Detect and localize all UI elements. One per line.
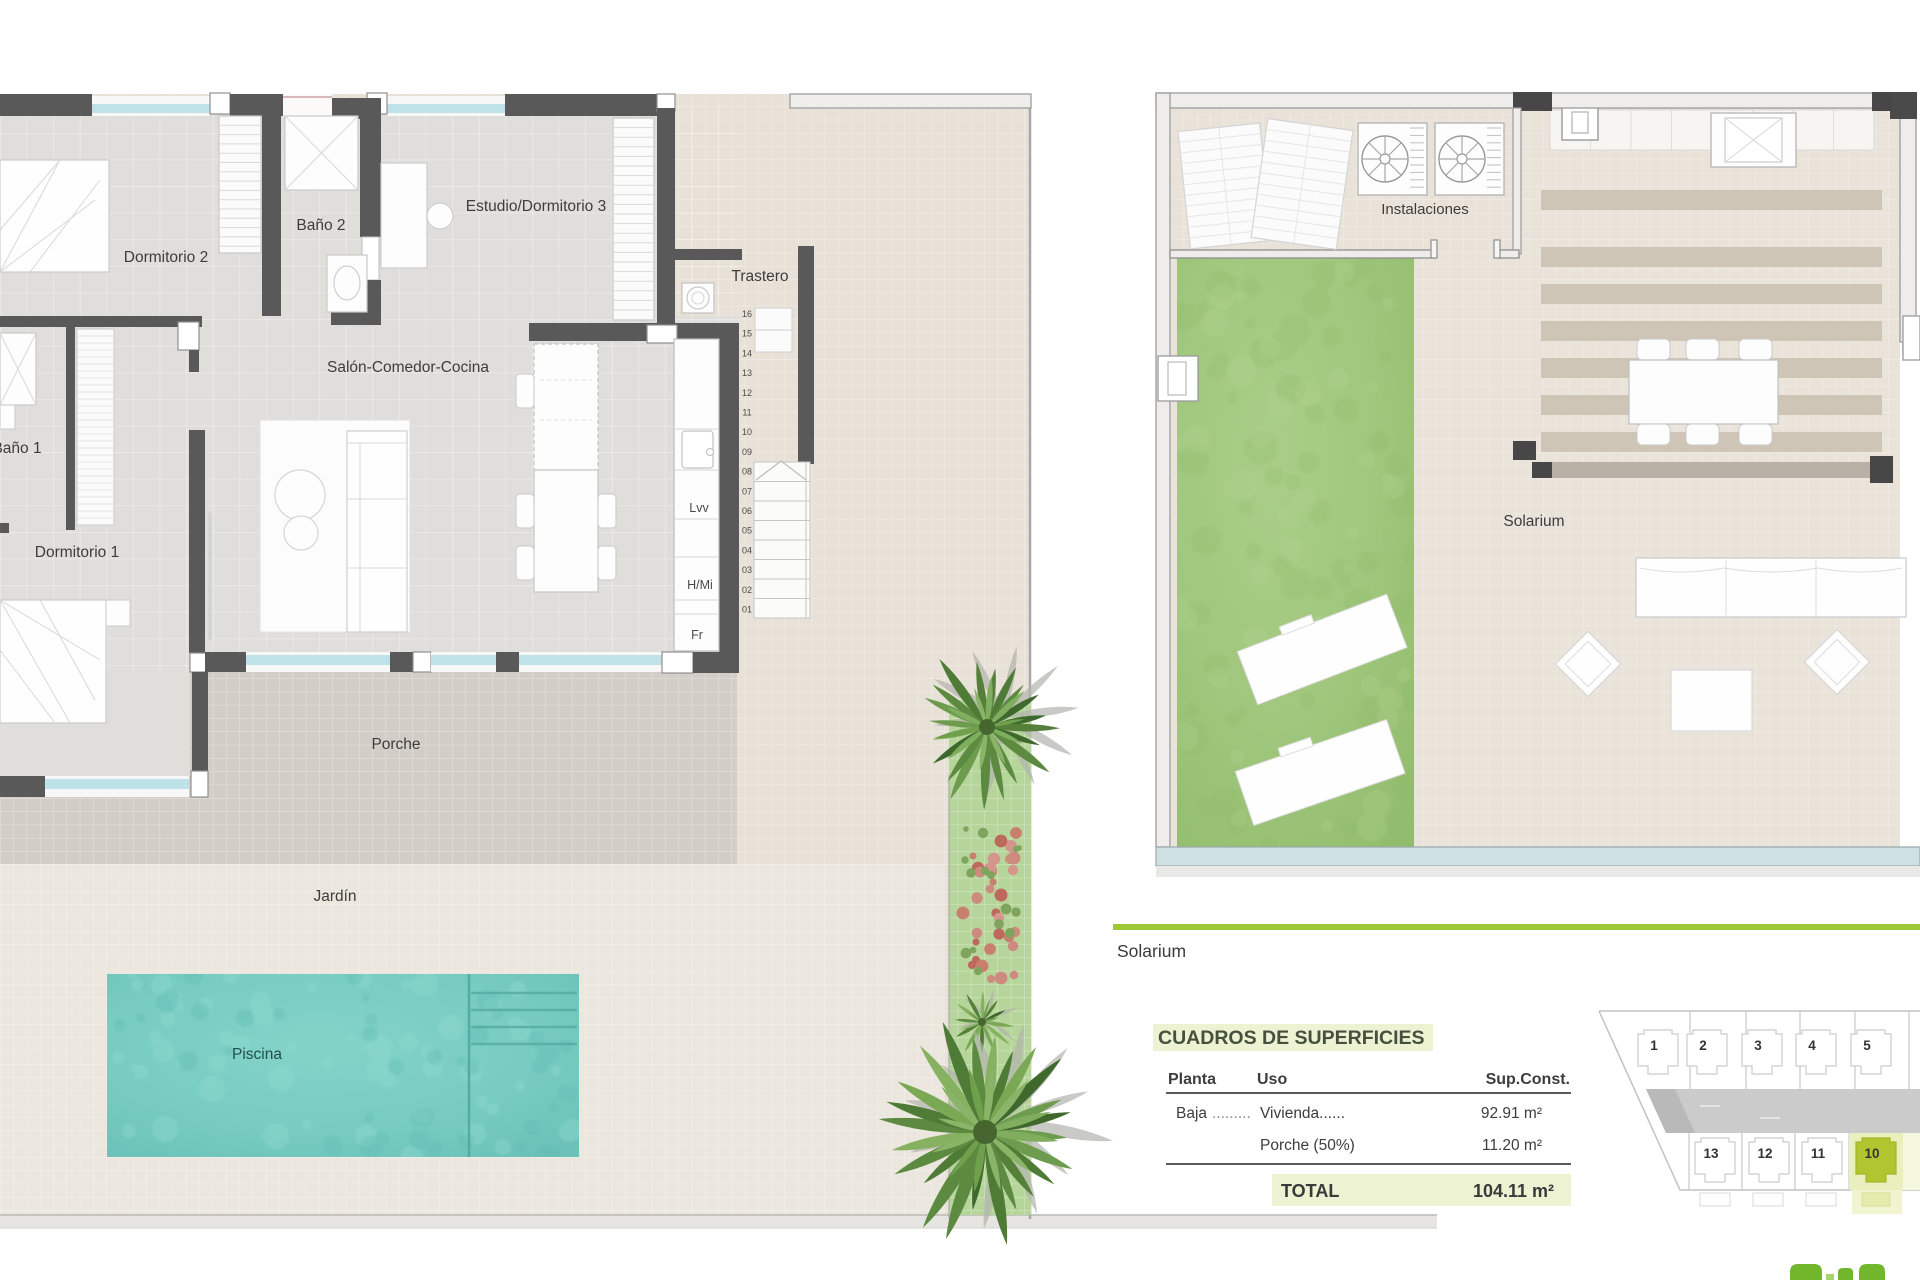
svg-text:Dormitorio 2: Dormitorio 2 xyxy=(124,249,208,266)
svg-text:04: 04 xyxy=(742,545,752,555)
svg-text:06: 06 xyxy=(742,506,752,516)
svg-text:3: 3 xyxy=(1754,1038,1762,1053)
svg-text:08: 08 xyxy=(742,467,752,477)
svg-text:14: 14 xyxy=(742,348,752,358)
svg-text:Jardín: Jardín xyxy=(313,888,356,905)
svg-text:05: 05 xyxy=(742,526,752,536)
svg-text:12: 12 xyxy=(1757,1146,1772,1161)
svg-text:Baño 2: Baño 2 xyxy=(296,217,345,234)
svg-text:02: 02 xyxy=(742,585,752,595)
svg-text:13: 13 xyxy=(1703,1146,1719,1161)
svg-text:15: 15 xyxy=(742,329,752,339)
svg-text:13: 13 xyxy=(742,368,752,378)
svg-text:Solarium: Solarium xyxy=(1503,513,1564,530)
svg-text:16: 16 xyxy=(742,309,752,319)
svg-text:12: 12 xyxy=(742,388,752,398)
svg-text:Dormitorio 1: Dormitorio 1 xyxy=(35,544,119,561)
svg-text:4: 4 xyxy=(1808,1038,1816,1053)
svg-text:Uso: Uso xyxy=(1257,1071,1287,1088)
svg-text:5: 5 xyxy=(1863,1038,1871,1053)
svg-text:07: 07 xyxy=(742,486,752,496)
svg-text:Porche (50%): Porche (50%) xyxy=(1260,1137,1355,1154)
svg-text:CUADROS DE SUPERFICIES: CUADROS DE SUPERFICIES xyxy=(1158,1027,1425,1049)
svg-text:Estudio/Dormitorio 3: Estudio/Dormitorio 3 xyxy=(466,198,606,215)
svg-text:TOTAL: TOTAL xyxy=(1281,1181,1339,1201)
svg-text:11.20 m²: 11.20 m² xyxy=(1482,1137,1542,1154)
svg-text:.........: ......... xyxy=(1212,1105,1251,1122)
svg-text:Trastero: Trastero xyxy=(731,268,788,285)
svg-text:Lvv: Lvv xyxy=(689,501,709,515)
svg-text:92.91 m²: 92.91 m² xyxy=(1481,1105,1542,1122)
svg-text:Vivienda......: Vivienda...... xyxy=(1260,1105,1345,1122)
svg-text:1: 1 xyxy=(1650,1038,1658,1053)
svg-text:Sup.Const.: Sup.Const. xyxy=(1486,1071,1570,1088)
svg-text:Instalaciones: Instalaciones xyxy=(1381,201,1469,218)
svg-text:Baja: Baja xyxy=(1176,1105,1207,1122)
svg-text:Planta: Planta xyxy=(1168,1071,1216,1088)
svg-text:Porche: Porche xyxy=(371,736,420,753)
svg-text:01: 01 xyxy=(742,605,752,615)
svg-text:Solarium: Solarium xyxy=(1117,941,1186,961)
svg-text:03: 03 xyxy=(742,565,752,575)
svg-text:09: 09 xyxy=(742,447,752,457)
svg-text:Salón-Comedor-Cocina: Salón-Comedor-Cocina xyxy=(327,359,489,376)
svg-text:11: 11 xyxy=(1811,1146,1826,1161)
svg-text:Baño 1: Baño 1 xyxy=(0,440,42,457)
svg-text:H/Mi: H/Mi xyxy=(687,578,713,592)
svg-text:Fr: Fr xyxy=(691,628,703,642)
svg-text:Piscina: Piscina xyxy=(232,1046,282,1063)
svg-text:2: 2 xyxy=(1699,1038,1707,1053)
svg-text:10: 10 xyxy=(742,427,752,437)
svg-text:11: 11 xyxy=(742,408,751,418)
svg-text:10: 10 xyxy=(1864,1146,1879,1161)
svg-text:104.11 m²: 104.11 m² xyxy=(1473,1181,1554,1201)
